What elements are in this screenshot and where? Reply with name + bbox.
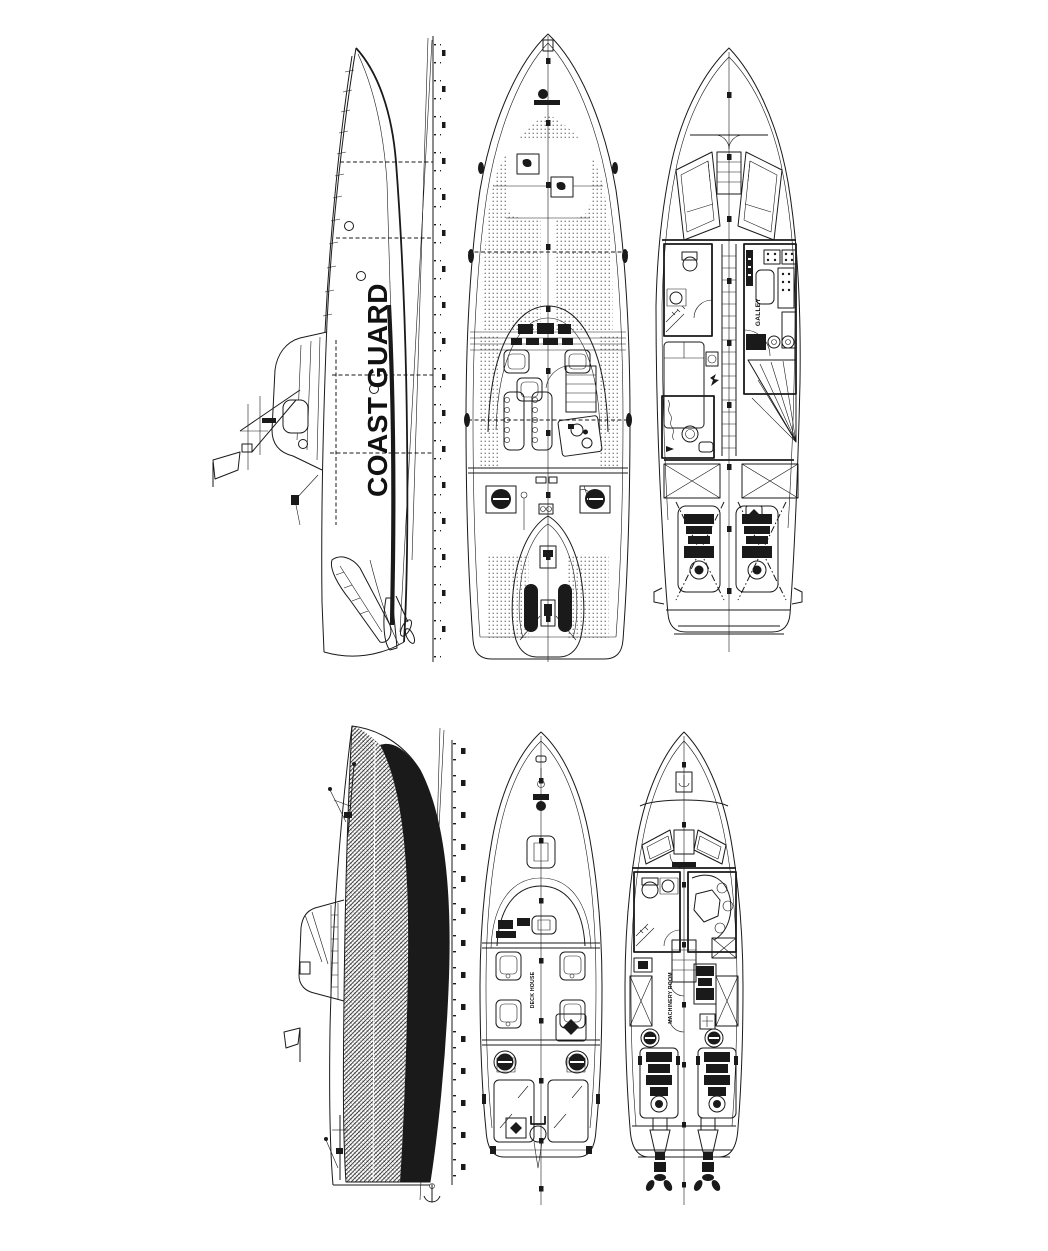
starboard-engine: [742, 514, 772, 579]
hull-name-text: COAST GUARD: [362, 283, 393, 497]
dinette: [688, 872, 736, 958]
stern-boat-and-gear: [331, 557, 416, 650]
station-ruler: [433, 36, 447, 662]
galley-module: [558, 415, 603, 456]
top-deck-plan: [455, 22, 650, 670]
deckhouse-profile: [272, 332, 336, 525]
flag: [284, 1028, 300, 1062]
helm-seats: [504, 350, 590, 401]
bottom-profile-view: [275, 716, 470, 1216]
bottom-interior-plan: MACHINERY ROOM: [618, 726, 750, 1212]
centerline-stations: [682, 736, 686, 1205]
station-ruler: [452, 740, 466, 1185]
galley-area: GALLEY: [744, 244, 796, 394]
stair-wedge: [748, 360, 796, 442]
top-profile-view: COAST GUARD: [185, 18, 450, 678]
port-berth-cabin: [664, 342, 719, 428]
dark-hull: [343, 726, 449, 1182]
transom: [666, 610, 790, 634]
galley-label: GALLEY: [755, 298, 762, 327]
port-engine: [684, 514, 714, 579]
bottom-deck-plan: DECK HOUSE: [468, 726, 618, 1212]
head-compartment: [664, 244, 712, 336]
bow-railing: [323, 56, 354, 332]
engine-room: [638, 1029, 738, 1118]
stern-outdrive: [424, 1184, 440, 1203]
port-drive: [646, 1118, 672, 1191]
starboard-drive: [694, 1118, 720, 1191]
deck-house-label: DECK HOUSE: [530, 971, 536, 1008]
deckhouse-profile: [299, 900, 344, 1001]
top-interior-plan: GALLEY: [645, 40, 835, 660]
blueprint-sheet: COAST GUARD: [0, 0, 1048, 1251]
machinery-room-label: MACHINERY ROOM: [668, 972, 674, 1024]
port-washroom: [662, 396, 714, 458]
